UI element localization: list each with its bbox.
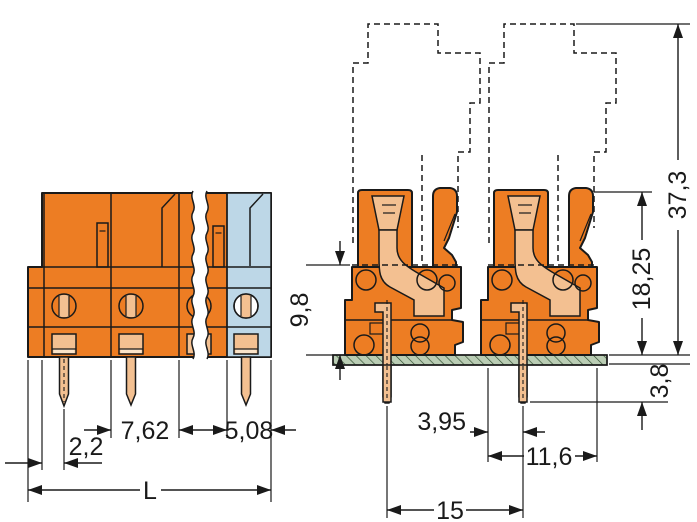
pcb xyxy=(333,355,607,365)
end-section-blue xyxy=(227,193,271,357)
dimension-label-pole-spacing: 15 xyxy=(436,497,464,522)
dimension-total-length: L xyxy=(28,477,271,505)
dimension-label-last-pitch: 5,08 xyxy=(225,417,274,445)
dimension-plug-depth: 9,8 xyxy=(286,241,340,380)
side-pins-below-board xyxy=(383,365,527,402)
dimension-pin-to-front: 3,95 xyxy=(417,408,545,436)
dimension-pole-spacing: 15 xyxy=(387,497,523,522)
dimension-label-header-height: 18,25 xyxy=(628,248,656,311)
drawing-canvas: 7,62 5,08 2,2 L xyxy=(0,0,697,522)
dimension-pin-offset: 2,2 xyxy=(5,433,103,463)
side-connector-2 xyxy=(481,24,616,403)
dimension-label-plug-depth: 9,8 xyxy=(286,293,314,328)
dimension-label-pin-length: 3,8 xyxy=(646,364,674,399)
dimension-label-pin-to-front: 3,95 xyxy=(417,408,466,436)
dimension-header-height: 18,25 xyxy=(628,192,656,355)
dimension-label-pitch: 7,62 xyxy=(121,417,170,445)
dimension-label-total-height: 37,3 xyxy=(664,171,692,220)
front-pins xyxy=(60,357,251,406)
front-view: 7,62 5,08 2,2 L xyxy=(5,191,296,505)
dimension-label-housing-depth: 11,6 xyxy=(526,443,573,471)
break-symbol xyxy=(192,191,208,359)
side-view: 9,8 18,25 37,3 3,8 3,95 11,6 xyxy=(286,24,692,522)
dimension-housing-depth: 11,6 xyxy=(488,443,597,471)
dimension-label-pin-offset: 2,2 xyxy=(69,433,104,461)
dimension-label-total-length: L xyxy=(143,477,157,505)
dimension-last-pitch: 5,08 xyxy=(206,417,296,445)
technical-drawing: 7,62 5,08 2,2 L xyxy=(0,0,697,522)
side-connector-1 xyxy=(345,24,480,403)
dimension-total-height: 37,3 xyxy=(664,24,692,355)
dimension-pin-length: 3,8 xyxy=(642,364,674,430)
